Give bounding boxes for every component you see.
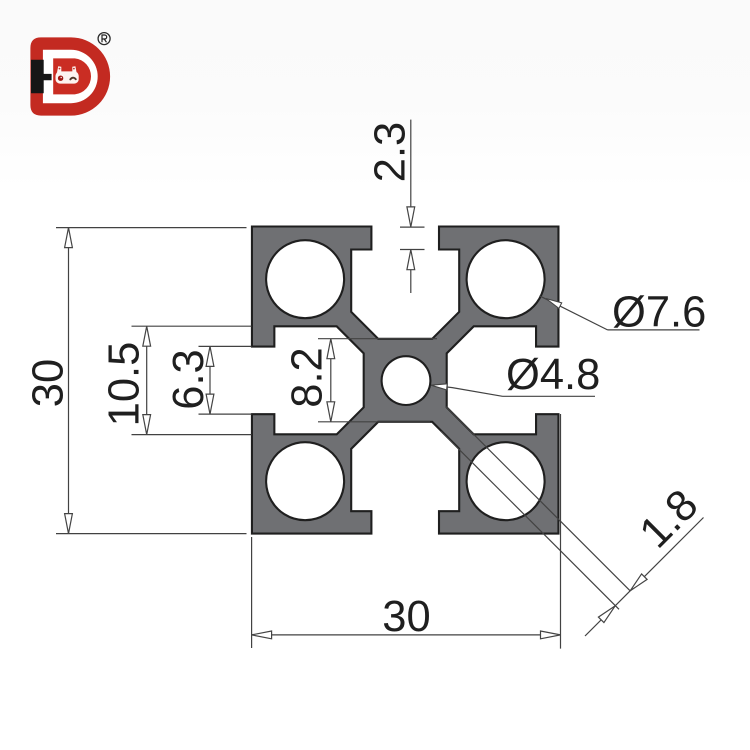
svg-text:2.3: 2.3 (367, 122, 415, 182)
svg-text:30: 30 (25, 359, 73, 407)
svg-text:8.2: 8.2 (284, 347, 332, 407)
svg-text:Ø7.6: Ø7.6 (612, 289, 706, 337)
svg-text:30: 30 (382, 593, 430, 641)
svg-text:6.3: 6.3 (165, 349, 213, 409)
svg-text:Ø4.8: Ø4.8 (506, 351, 600, 399)
svg-text:10.5: 10.5 (101, 342, 149, 427)
